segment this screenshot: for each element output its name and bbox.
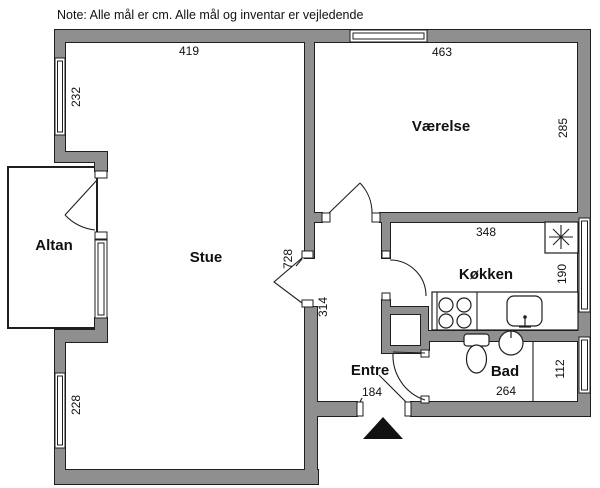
wall-top [55, 30, 590, 42]
dim-vaerelse-top: 463 [432, 45, 452, 59]
wall-vaerelse-koekken [380, 213, 578, 222]
jamb-vaerelse-left [322, 213, 330, 222]
entrance-arrow [363, 417, 403, 439]
wall-entre-bad-stub [421, 341, 429, 350]
jamb-stue-opening-top [302, 251, 313, 258]
dim-stue-upper-window: 232 [69, 87, 83, 107]
dim-koekken-depth: 190 [555, 264, 569, 284]
kitchen-sink [507, 296, 542, 327]
dim-bad-window: 112 [553, 359, 567, 378]
floor-plan: Note: Alle mål er cm. Alle mål og invent… [0, 0, 600, 488]
labels: Note: Alle mål er cm. Alle mål og invent… [35, 8, 570, 415]
jamb-entrance-left [357, 402, 363, 416]
jamb-koekken-bottom [382, 293, 390, 300]
dim-vaerelse-depth: 285 [556, 118, 570, 138]
walls-outline-layer [54, 29, 591, 485]
wall-balcony-a [95, 162, 107, 171]
jamb-koekken-top [382, 251, 390, 258]
vaerelse-door-arc [360, 183, 372, 213]
jamb-altan-bottom [95, 232, 107, 239]
door-jambs [95, 171, 429, 416]
dim-entrance: 184 [362, 385, 382, 399]
koekken-door-arc [390, 260, 426, 296]
appliance-star-box [545, 222, 578, 253]
toilet [464, 334, 489, 373]
floor-plan-page: Note: Alle mål er cm. Alle mål og invent… [0, 0, 600, 488]
entrance-door-leaf [379, 375, 406, 402]
dim-stue-length: 728 [281, 249, 295, 269]
window-vaerelse-top [350, 30, 427, 42]
bathroom-sink [499, 330, 523, 355]
wall-stue-entre [305, 307, 317, 470]
window-altan [95, 240, 107, 318]
window-stue-lower [55, 373, 65, 448]
wall-bottom-stue [55, 470, 318, 484]
dim-stue-top: 419 [179, 44, 199, 58]
wall-vaerelse-door-stub [314, 213, 322, 222]
wall-balcony-jog-top [55, 152, 107, 162]
wall-stue-vaerelse [305, 42, 314, 258]
room-label-koekken: Køkken [459, 266, 513, 283]
room-label-stue: Stue [190, 249, 223, 266]
window-stue-upper [55, 58, 65, 135]
jamb-entrance-right [405, 402, 411, 416]
jamb-vaerelse-right [372, 213, 380, 222]
room-label-altan: Altan [35, 237, 73, 254]
plan-note: Note: Alle mål er cm. Alle mål og invent… [57, 8, 363, 22]
jamb-stue-opening-bottom [302, 300, 313, 307]
walls-fill-layer [55, 30, 590, 484]
dim-bad-width: 264 [496, 384, 516, 398]
bad-door-arc [393, 353, 425, 400]
room-label-entre: Entre [351, 362, 389, 379]
jamb-bad-top [421, 350, 429, 357]
window-koekken-right [579, 218, 590, 312]
kitchen-counter [432, 292, 578, 330]
room-label-bad: Bad [491, 363, 519, 380]
dim-stue-lower-window: 228 [69, 395, 83, 415]
wall-bottom-entre-right [411, 402, 590, 416]
dim-stue-opening: 314 [316, 297, 330, 317]
window-bad-right [579, 337, 590, 393]
dim-koekken-top: 348 [476, 225, 496, 239]
room-label-vaerelse: Værelse [412, 118, 470, 135]
jamb-altan-top [95, 171, 107, 178]
vaerelse-door-leaf [329, 183, 360, 213]
